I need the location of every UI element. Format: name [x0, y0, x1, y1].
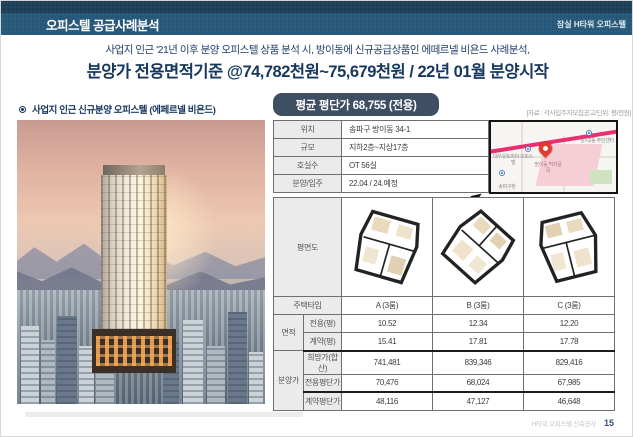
map-label: 송파구청 — [493, 184, 521, 190]
map-park — [590, 170, 612, 184]
price-value: 68,024 — [433, 374, 524, 392]
info-label: 규모 — [274, 139, 342, 157]
page-number: 15 — [604, 418, 614, 428]
unit-type: C (3룸) — [524, 297, 615, 315]
price-row-label: 계약평단가 — [304, 392, 342, 410]
section-title: 사업지 인근 신규분양 오피스텔 (에페르넬 비욘드) — [32, 102, 216, 116]
type-row-label: 주택타입 — [274, 297, 342, 315]
source-note: [자료 : 각사입주자모집공고/단위: 평/천원] — [441, 107, 631, 117]
page-title: 오피스텔 공급사례분석 — [46, 15, 159, 34]
poi-icon — [586, 130, 592, 136]
building — [207, 346, 225, 404]
section-header: 사업지 인근 신규분양 오피스텔 (에페르넬 비욘드) — [19, 102, 216, 116]
area-value: 17.81 — [433, 333, 524, 351]
price-row-label: 전용평단가 — [304, 374, 342, 392]
floorplan-a-image — [345, 201, 429, 293]
info-label: 호실수 — [274, 157, 342, 175]
area-value: 15.41 — [342, 333, 433, 351]
price-value: 829,416 — [524, 351, 615, 375]
location-map: 방이2동 주민센터 대우유토피아 오피스텔 방이동 먹자골목 송파구청 — [489, 120, 618, 194]
floorplan-b — [433, 198, 524, 297]
floorplan-b-image — [436, 201, 520, 293]
price-value: 47,127 — [433, 392, 524, 410]
poi-icon — [499, 170, 505, 176]
info-value: 지하2층~지상17층 — [342, 139, 489, 157]
top-accent-strip — [1, 1, 633, 13]
subtitle-line1: 사업지 인근 '21년 이후 분양 오피스텔 상품 분석 시, 방이동에 신규공… — [1, 42, 633, 57]
poi-icon — [525, 146, 531, 152]
price-value: 67,985 — [524, 374, 615, 392]
price-value: 70,476 — [342, 374, 433, 392]
footer: H타워 오피스텔 신축공사 15 — [532, 418, 614, 428]
price-value: 48,116 — [342, 392, 433, 410]
area-row-label: 계약(평) — [304, 333, 342, 351]
price-value: 741,481 — [342, 351, 433, 375]
info-value: 22.04 / 24.예정 — [342, 175, 489, 193]
area-row-label: 전용(평) — [304, 315, 342, 333]
building — [57, 316, 77, 404]
unit-detail-table: 평면도 — [273, 197, 615, 411]
bullet-icon — [19, 106, 26, 113]
slide: 오피스텔 공급사례분석 잠실 H타워 오피스텔 사업지 인근 '21년 이후 분… — [0, 0, 633, 437]
info-value: OT 56실 — [342, 157, 489, 175]
header-band: 오피스텔 공급사례분석 잠실 H타워 오피스텔 — [1, 13, 633, 35]
area-value: 17.78 — [524, 333, 615, 351]
building — [228, 312, 247, 404]
building — [183, 320, 203, 404]
building-render-image — [17, 120, 265, 404]
price-group-label: 분양가 — [274, 351, 304, 411]
floorplan-c-image — [527, 201, 611, 293]
project-name: 잠실 H타워 오피스텔 — [557, 19, 626, 30]
area-value: 12.20 — [524, 315, 615, 333]
unit-type: B (3룸) — [433, 297, 524, 315]
footer-project-text: H타워 오피스텔 신축공사 — [532, 418, 596, 428]
map-label: 방이2동 주민센터 — [580, 138, 614, 144]
photo-shadow-divider — [25, 412, 303, 417]
project-info-table: 위치 송파구 방이동 34-1 규모 지하2층~지상17층 호실수 OT 56실… — [273, 120, 489, 193]
building — [249, 352, 263, 404]
info-label: 위치 — [274, 121, 342, 139]
unit-type: A (3룸) — [342, 297, 433, 315]
officetel-tower — [101, 165, 167, 373]
building — [21, 326, 39, 404]
plan-row-label: 평면도 — [274, 198, 342, 297]
floorplan-a — [342, 198, 433, 297]
avg-price-badge: 평균 평단가 68,755 (전용) — [273, 93, 439, 116]
price-value: 839,346 — [433, 351, 524, 375]
building — [41, 340, 55, 404]
floorplan-c — [524, 198, 615, 297]
subtitle-line2: 분양가 전용면적기준 @74,782천원~75,679천원 / 22년 01월 … — [1, 58, 633, 82]
map-label: 대우유토피아 오피스텔 — [493, 154, 533, 167]
area-group-label: 면적 — [274, 315, 304, 351]
info-label: 분양/입주 — [274, 175, 342, 193]
map-label: 방이동 먹자골목 — [533, 162, 563, 175]
info-value: 송파구 방이동 34-1 — [342, 121, 489, 139]
price-value: 46,648 — [524, 392, 615, 410]
area-value: 10.52 — [342, 315, 433, 333]
price-row-label: 희망가(합산) — [304, 351, 342, 375]
area-value: 12.34 — [433, 315, 524, 333]
